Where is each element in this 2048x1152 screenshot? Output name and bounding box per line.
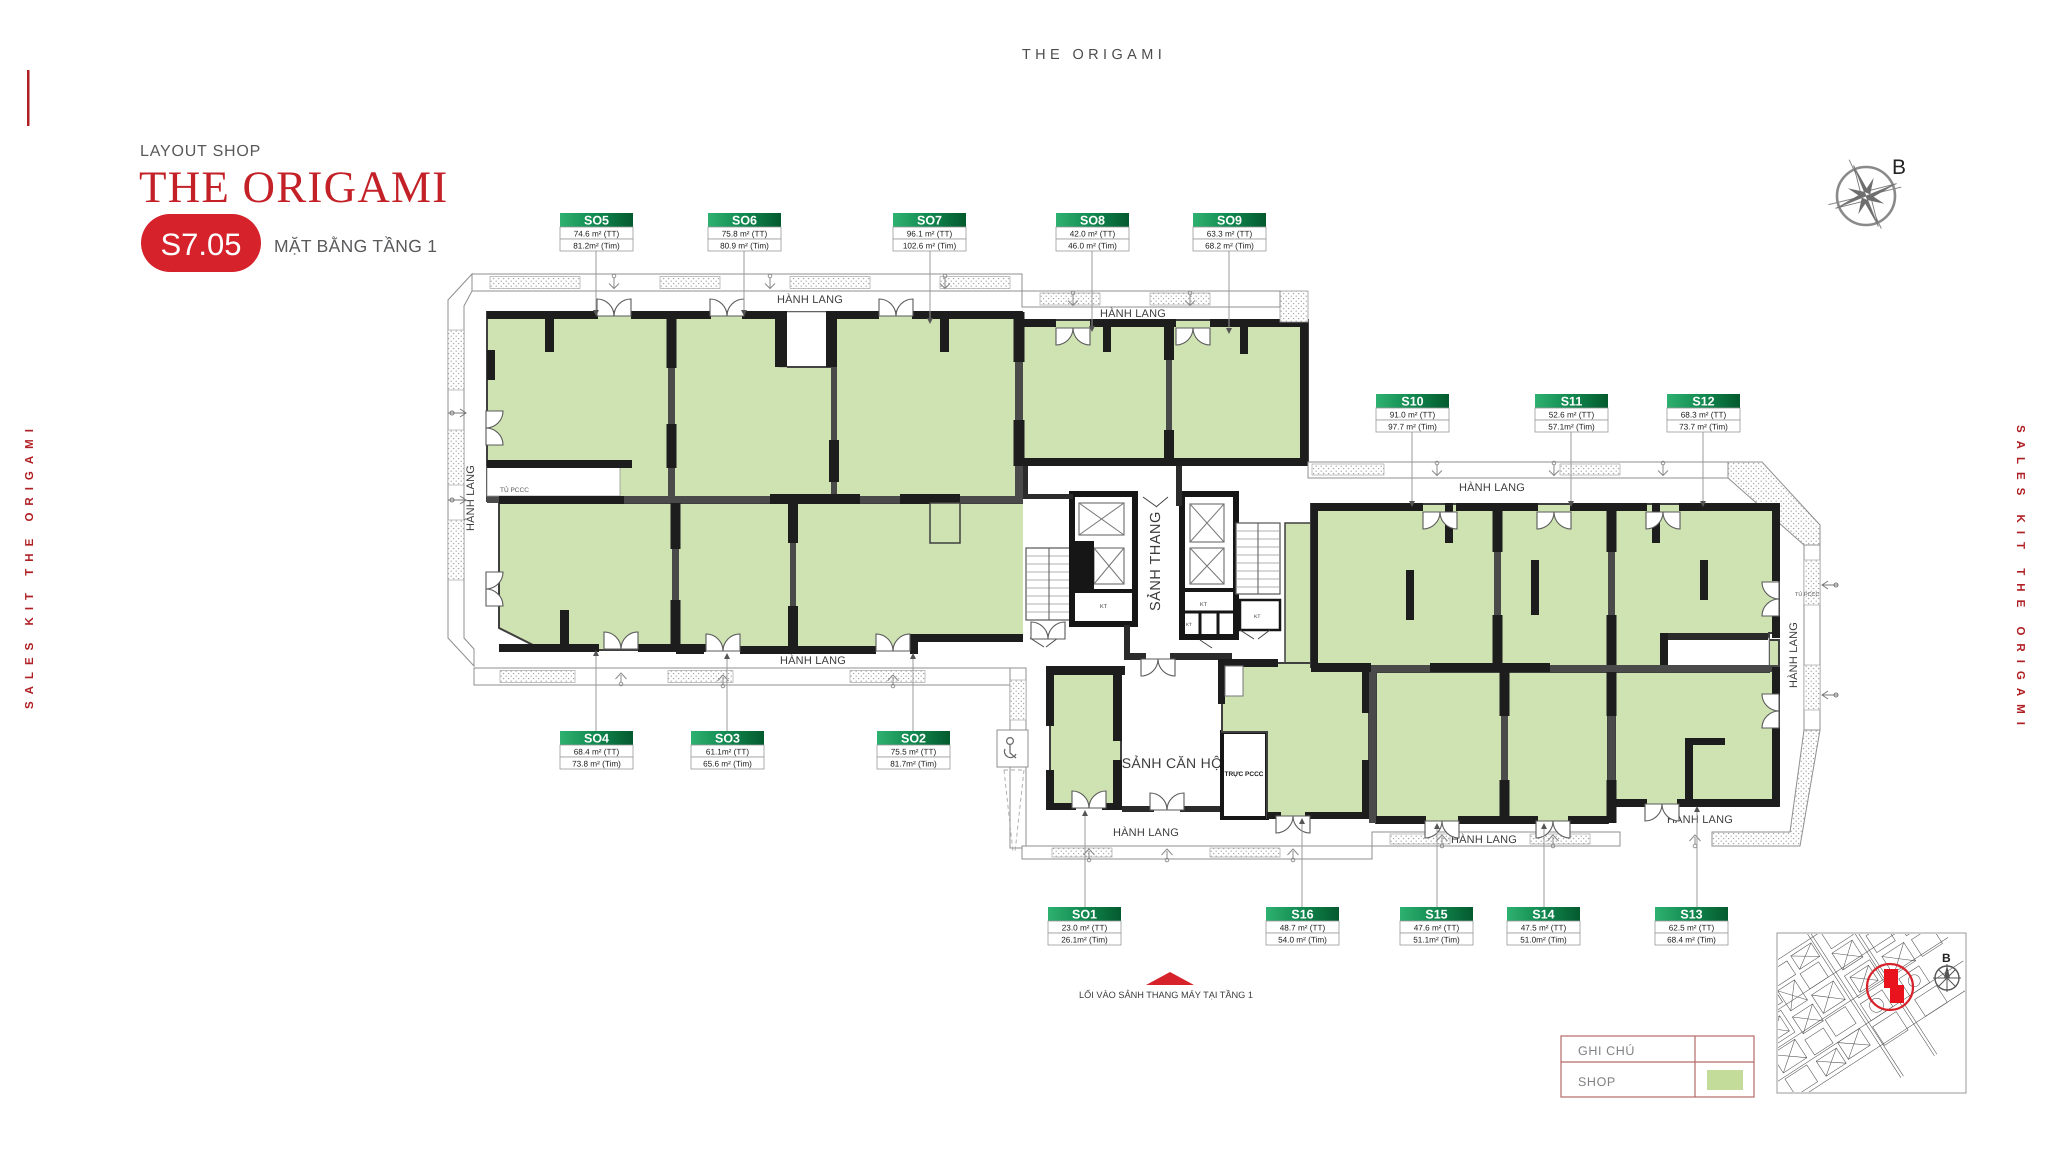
svg-text:68.4 m² (Tim): 68.4 m² (Tim): [1667, 936, 1716, 945]
svg-text:SO3: SO3: [715, 732, 740, 746]
svg-text:GHI CHÚ: GHI CHÚ: [1578, 1044, 1635, 1058]
svg-text:23.0 m² (TT): 23.0 m² (TT): [1062, 924, 1108, 933]
svg-text:47.5 m² (TT): 47.5 m² (TT): [1521, 924, 1567, 933]
svg-text:SẢNH CĂN HỘ: SẢNH CĂN HỘ: [1122, 755, 1223, 771]
svg-text:TRỰC PCCC: TRỰC PCCC: [1225, 771, 1264, 778]
svg-text:81.7m² (Tim): 81.7m² (Tim): [890, 760, 937, 769]
svg-text:HÀNH LANG: HÀNH LANG: [1459, 481, 1525, 494]
svg-text:75.5 m² (TT): 75.5 m² (TT): [891, 748, 937, 757]
svg-text:SALES KIT THE ORIGAMI: SALES KIT THE ORIGAMI: [24, 422, 36, 709]
svg-text:SO4: SO4: [584, 732, 609, 746]
svg-text:S15: S15: [1425, 908, 1447, 922]
svg-text:68.3 m² (TT): 68.3 m² (TT): [1681, 411, 1727, 420]
svg-text:97.7 m² (Tim): 97.7 m² (Tim): [1388, 423, 1437, 432]
svg-text:75.8 m² (TT): 75.8 m² (TT): [722, 230, 768, 239]
svg-text:73.8 m² (Tim): 73.8 m² (Tim): [572, 760, 621, 769]
svg-text:51.1m² (Tim): 51.1m² (Tim): [1413, 936, 1460, 945]
svg-text:68.4 m² (TT): 68.4 m² (TT): [574, 748, 620, 757]
svg-text:S11: S11: [1561, 395, 1583, 409]
svg-text:52.6 m² (TT): 52.6 m² (TT): [1549, 411, 1595, 420]
svg-text:LAYOUT SHOP: LAYOUT SHOP: [140, 143, 261, 160]
svg-text:SO2: SO2: [901, 732, 926, 746]
svg-text:SO5: SO5: [584, 214, 609, 228]
svg-text:KT: KT: [1254, 614, 1260, 620]
svg-text:62.5 m² (TT): 62.5 m² (TT): [1669, 924, 1715, 933]
svg-text:S14: S14: [1532, 908, 1554, 922]
svg-text:SẢNH THANG: SẢNH THANG: [1147, 511, 1164, 611]
svg-text:80.9 m² (Tim): 80.9 m² (Tim): [720, 242, 769, 251]
svg-text:HÀNH LANG: HÀNH LANG: [780, 654, 846, 667]
svg-text:42.0 m² (TT): 42.0 m² (TT): [1070, 230, 1116, 239]
svg-text:B: B: [1942, 951, 1951, 965]
svg-text:SO9: SO9: [1217, 214, 1242, 228]
svg-text:74.6 m² (TT): 74.6 m² (TT): [574, 230, 620, 239]
svg-text:KT: KT: [1186, 622, 1192, 627]
svg-text:KT: KT: [1100, 604, 1108, 610]
svg-text:SO8: SO8: [1080, 214, 1105, 228]
svg-text:S10: S10: [1401, 395, 1423, 409]
svg-text:91.0 m² (TT): 91.0 m² (TT): [1390, 411, 1436, 420]
svg-text:57.1m² (Tim): 57.1m² (Tim): [1548, 423, 1595, 432]
svg-text:HÀNH LANG: HÀNH LANG: [1100, 307, 1166, 320]
svg-text:TỦ PCCC: TỦ PCCC: [500, 486, 529, 494]
svg-text:SALES KIT THE ORIGAMI: SALES KIT THE ORIGAMI: [2014, 425, 2026, 733]
svg-text:MẶT BẰNG TẦNG 1: MẶT BẰNG TẦNG 1: [274, 236, 437, 256]
svg-text:SHOP: SHOP: [1578, 1075, 1616, 1089]
svg-text:SO6: SO6: [732, 214, 757, 228]
svg-text:48.7 m² (TT): 48.7 m² (TT): [1280, 924, 1326, 933]
svg-text:B: B: [1892, 156, 1906, 179]
svg-text:HÀNH LANG: HÀNH LANG: [1451, 833, 1517, 846]
svg-text:S16: S16: [1291, 908, 1313, 922]
svg-text:81.2m² (Tim): 81.2m² (Tim): [573, 242, 620, 251]
svg-text:THE ORIGAMI: THE ORIGAMI: [139, 162, 448, 212]
svg-text:KT: KT: [1200, 602, 1208, 608]
svg-text:46.0 m² (Tim): 46.0 m² (Tim): [1068, 242, 1117, 251]
svg-text:54.0 m² (Tim): 54.0 m² (Tim): [1278, 936, 1327, 945]
svg-text:51.0m² (Tim): 51.0m² (Tim): [1520, 936, 1567, 945]
svg-text:SO1: SO1: [1072, 908, 1097, 922]
svg-text:63.3 m² (TT): 63.3 m² (TT): [1207, 230, 1253, 239]
svg-text:S12: S12: [1692, 395, 1714, 409]
svg-text:61.1m² (TT): 61.1m² (TT): [706, 748, 749, 757]
svg-text:HÀNH LANG: HÀNH LANG: [464, 465, 477, 531]
svg-text:68.2 m² (Tim): 68.2 m² (Tim): [1205, 242, 1254, 251]
svg-text:96.1 m² (TT): 96.1 m² (TT): [907, 230, 953, 239]
svg-text:S7.05: S7.05: [160, 227, 241, 262]
svg-text:65.6 m² (Tim): 65.6 m² (Tim): [703, 760, 752, 769]
svg-text:THE ORIGAMI: THE ORIGAMI: [1022, 47, 1166, 63]
svg-text:73.7 m² (Tim): 73.7 m² (Tim): [1679, 423, 1728, 432]
svg-text:S13: S13: [1680, 908, 1702, 922]
svg-text:HÀNH LANG: HÀNH LANG: [777, 293, 843, 306]
svg-text:HÀNH LANG: HÀNH LANG: [1113, 826, 1179, 839]
svg-text:102.6 m² (Tim): 102.6 m² (Tim): [903, 242, 957, 251]
svg-text:47.6 m² (TT): 47.6 m² (TT): [1414, 924, 1460, 933]
svg-text:TỦ PCCC: TỦ PCCC: [1795, 591, 1819, 598]
svg-text:LỐI VÀO SẢNH THANG MÁY TẠI TẦN: LỐI VÀO SẢNH THANG MÁY TẠI TẦNG 1: [1079, 989, 1253, 1000]
svg-text:SO7: SO7: [917, 214, 942, 228]
svg-text:26.1m² (Tim): 26.1m² (Tim): [1061, 936, 1108, 945]
svg-text:HÀNH LANG: HÀNH LANG: [1787, 622, 1800, 688]
